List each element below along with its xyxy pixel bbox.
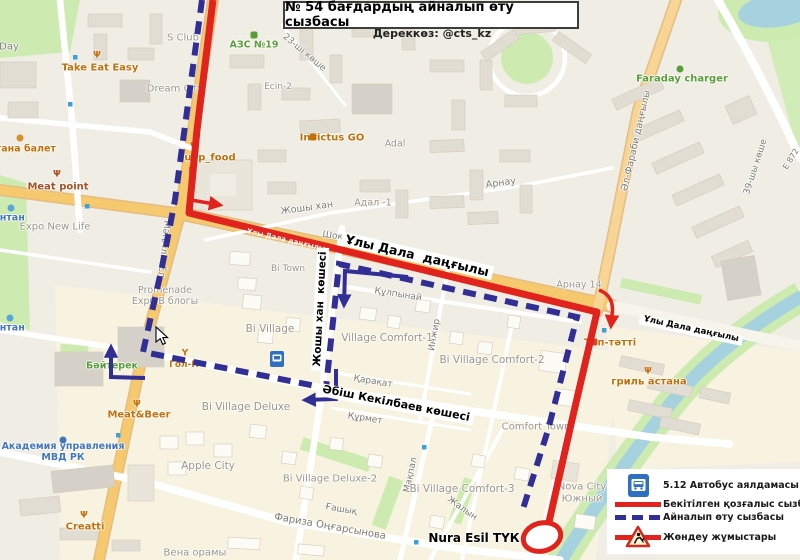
building <box>430 139 464 152</box>
detour-scheme-map: DayTake Eat EasyS ClubАЗС №19Dream CityE… <box>0 0 800 560</box>
building <box>415 299 431 313</box>
building <box>360 180 390 192</box>
building <box>520 185 532 213</box>
source-credit: Дереккөз: @cts_kz <box>357 27 507 40</box>
legend-label: Бекітілген қозғалыс сызбасы <box>663 499 800 510</box>
legend-label: Айналып өту сызбасы <box>663 512 784 523</box>
legend: 5.12 Автобус аялдамасы Бекітілген қозғал… <box>607 469 800 554</box>
building <box>430 195 464 208</box>
building <box>429 515 445 529</box>
bus-stop-sign-icon <box>613 474 663 497</box>
building <box>505 95 537 107</box>
building <box>228 537 261 550</box>
building <box>500 150 530 162</box>
legend-label: 5.12 Автобус аялдамасы <box>663 480 799 491</box>
building <box>128 48 154 60</box>
building <box>480 60 492 90</box>
mouse-cursor-icon <box>155 326 170 347</box>
building <box>214 444 232 457</box>
building <box>539 350 568 373</box>
building <box>268 182 296 194</box>
building <box>367 454 383 468</box>
building <box>468 211 498 224</box>
legend-label: Жөндеу жұмыстары <box>663 532 776 543</box>
building <box>285 317 300 331</box>
building <box>387 315 401 329</box>
bus-stop-sign-map-icon <box>270 351 284 367</box>
building <box>514 467 530 481</box>
building <box>721 255 761 300</box>
bus-stop-dot-icon <box>73 55 78 60</box>
bus-stop-dot-icon <box>85 204 90 209</box>
building <box>574 514 596 531</box>
building <box>8 102 38 118</box>
building <box>257 329 273 343</box>
building <box>88 14 122 27</box>
building <box>359 307 377 321</box>
scheme-title: № 54 бағдардың айналып өту сызбасы <box>283 1 579 29</box>
bus-stop-dot-icon <box>150 298 155 303</box>
legend-row-detour: Айналып өту сызбасы <box>613 512 800 523</box>
detour-route-line-icon <box>613 515 663 520</box>
building <box>230 251 251 265</box>
building <box>352 84 392 114</box>
building <box>507 315 521 329</box>
building <box>551 460 579 481</box>
building <box>150 14 162 44</box>
building <box>0 62 36 88</box>
building <box>60 528 98 540</box>
building <box>300 30 313 60</box>
building <box>242 294 261 310</box>
building <box>396 190 408 218</box>
bus-stop-dot-icon <box>602 328 607 333</box>
building <box>128 465 154 501</box>
building <box>249 424 266 439</box>
building <box>120 80 150 102</box>
building <box>248 84 261 110</box>
legend-row-bus-stop: 5.12 Автобус аялдамасы <box>613 474 800 497</box>
scheme-title-text: № 54 бағдардың айналып өту сызбасы <box>285 0 577 30</box>
building <box>471 454 486 468</box>
building <box>452 100 465 130</box>
building <box>258 150 286 162</box>
building <box>555 389 579 408</box>
building <box>238 278 257 291</box>
bus-stop-dot-icon <box>414 540 419 545</box>
building <box>55 352 103 386</box>
building <box>282 88 310 100</box>
building <box>160 436 178 449</box>
roadworks-sign-icon <box>613 525 663 549</box>
building <box>281 451 296 464</box>
building <box>300 119 341 134</box>
approved-route-line-icon <box>613 502 663 507</box>
building <box>168 462 186 475</box>
building <box>186 432 204 445</box>
bus-stop-dot-icon <box>68 102 73 107</box>
building <box>449 331 464 345</box>
building <box>298 544 325 556</box>
building <box>112 540 140 551</box>
building <box>94 34 107 60</box>
building <box>329 437 343 450</box>
building <box>477 341 493 355</box>
legend-row-approved: Бекітілген қозғалыс сызбасы <box>613 499 800 510</box>
legend-row-roadworks: Жөндеу жұмыстары <box>613 525 800 549</box>
building <box>230 55 264 68</box>
bus-stop-dot-icon <box>116 433 121 438</box>
building <box>470 170 483 200</box>
building <box>330 55 342 83</box>
building <box>299 486 314 500</box>
bus-stop-dot-icon <box>422 445 427 450</box>
building <box>430 60 464 72</box>
